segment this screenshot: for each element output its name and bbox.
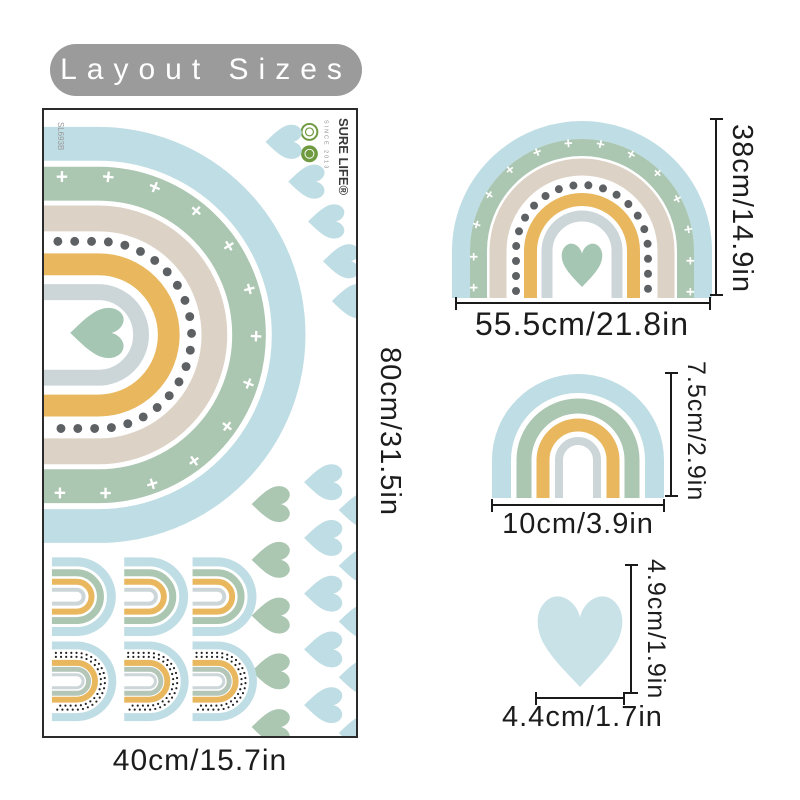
heart-icon [339, 548, 356, 584]
sheet-width-dim-label: 40cm/15.7in [50, 744, 350, 778]
heart-icon [339, 604, 356, 640]
sticker-sheet: + + + + + + + + + + + + + + + + SL693B S… [42, 108, 358, 738]
heart-width-dim-line [535, 697, 625, 699]
brand-since: SINCE 2013 [322, 120, 328, 170]
large-rainbow-width-dim-label: 55.5cm/21.8in [446, 306, 718, 343]
heart-icon [70, 308, 123, 358]
heart-icon [339, 659, 356, 695]
mini-rainbow-speckled-icon [124, 645, 184, 717]
heart-icon [304, 464, 342, 500]
heart-icon [252, 598, 290, 634]
logo-ring-icon [302, 124, 318, 140]
brand-name: SURE LIFE® [336, 118, 351, 196]
logo-ring-inner-icon [305, 128, 313, 136]
heart-icon [308, 204, 344, 238]
sticker-sheet-graphic: + + + + + + + + + + + + + + + + SL693B S… [44, 110, 356, 736]
large-rainbow-graphic: + + + + + + + + + + + + + + + + [450, 116, 714, 298]
mini-rainbows-speckled-row [52, 645, 253, 717]
mini-rainbow-speckled-icon [52, 645, 112, 717]
small-rainbow-width-dim-label: 10cm/3.9in [478, 508, 678, 541]
mini-rainbows-plain-row [52, 562, 252, 632]
large-rainbow-height-dim-line [715, 118, 717, 296]
heart-icon [562, 244, 603, 287]
heart-icon [339, 715, 356, 736]
blue-hearts-column [304, 464, 356, 736]
heart-icon [304, 576, 342, 612]
small-rainbow-height-dim-line [670, 372, 672, 497]
small-rainbow-height-dim-label: 7.5cm/2.9in [678, 358, 710, 504]
heart-width-dim-label: 4.4cm/1.7in [502, 701, 658, 734]
logo-green-badge-icon [301, 145, 318, 162]
heart-icon [304, 520, 342, 556]
large-rainbow-sheet-graphic: + + + + + + + + + + + + + + + + [44, 110, 289, 526]
large-rainbow-height-dim-label: 38cm/14.9in [722, 116, 758, 300]
heart-icon [288, 165, 324, 199]
heart-icon [252, 709, 290, 736]
sheet-height-dim-label: 80cm/31.5in [370, 336, 406, 526]
heart-height-dim-label: 4.9cm/1.9in [638, 556, 670, 702]
sheet-sku: SL693B [56, 122, 65, 150]
mini-rainbow-icon [193, 562, 252, 632]
mini-rainbow-icon [124, 562, 183, 632]
mini-rainbow-icon [52, 562, 111, 632]
heart-graphic [533, 584, 627, 694]
heart-icon [332, 284, 356, 318]
small-rainbow-graphic [490, 371, 666, 498]
heart-icon [323, 244, 356, 278]
heart-icon [265, 125, 301, 159]
heart-icon [304, 687, 342, 723]
heart-icon [339, 492, 356, 528]
heart-icon [252, 542, 290, 578]
heart-icon [252, 653, 290, 689]
heart-icon [252, 486, 290, 522]
large-rainbow-width-dim-line [455, 302, 711, 304]
mini-rainbow-speckled-icon [193, 645, 253, 717]
green-hearts-column [252, 486, 290, 736]
heart-icon [304, 631, 342, 667]
heart-icon [538, 596, 623, 687]
page-title: Layout Sizes [60, 53, 352, 87]
small-rainbow-width-dim-line [491, 504, 665, 506]
layout-sizes-badge: Layout Sizes [50, 44, 362, 96]
heart-height-dim-line [630, 564, 632, 694]
